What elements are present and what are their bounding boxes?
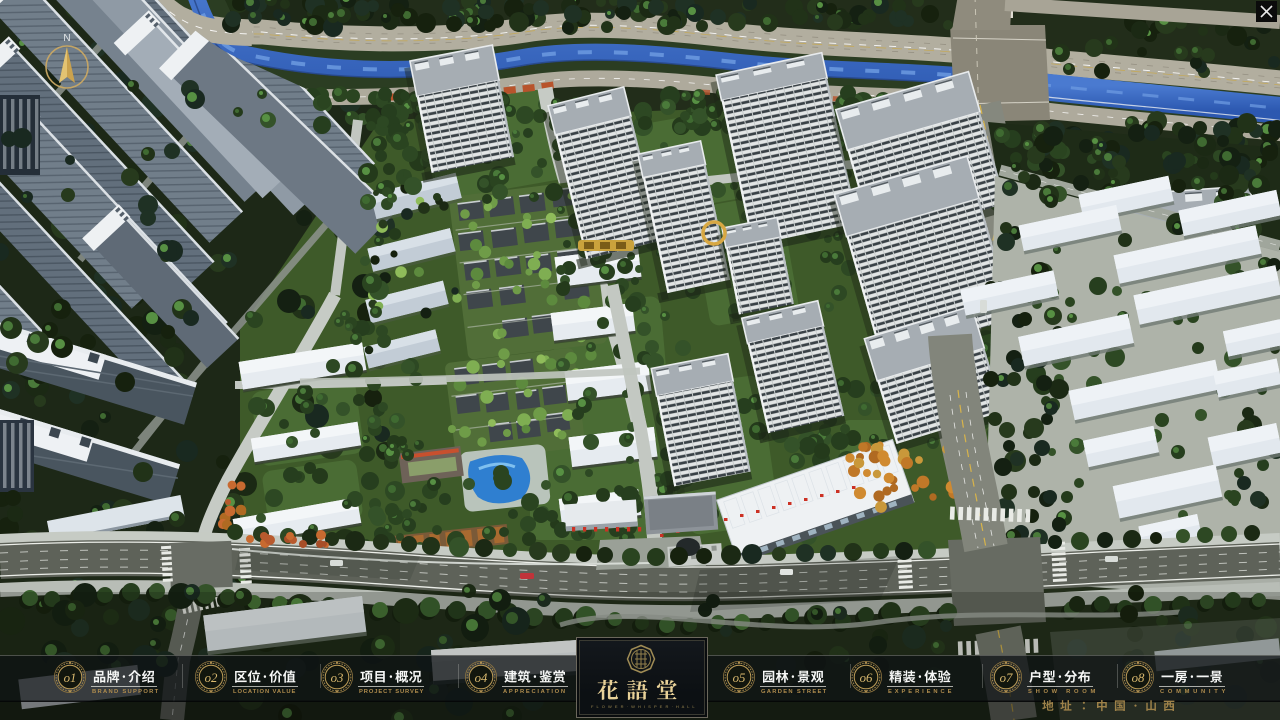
svg-text:N: N	[63, 33, 70, 44]
svg-text:o4: o4	[475, 671, 488, 685]
svg-text:o6: o6	[860, 671, 873, 685]
svg-text:o2: o2	[205, 671, 218, 685]
svg-text:o8: o8	[1132, 671, 1145, 685]
svg-text:o3: o3	[331, 671, 344, 685]
svg-text:o1: o1	[64, 671, 77, 685]
svg-text:o5: o5	[733, 671, 746, 685]
svg-text:o7: o7	[1000, 671, 1013, 685]
